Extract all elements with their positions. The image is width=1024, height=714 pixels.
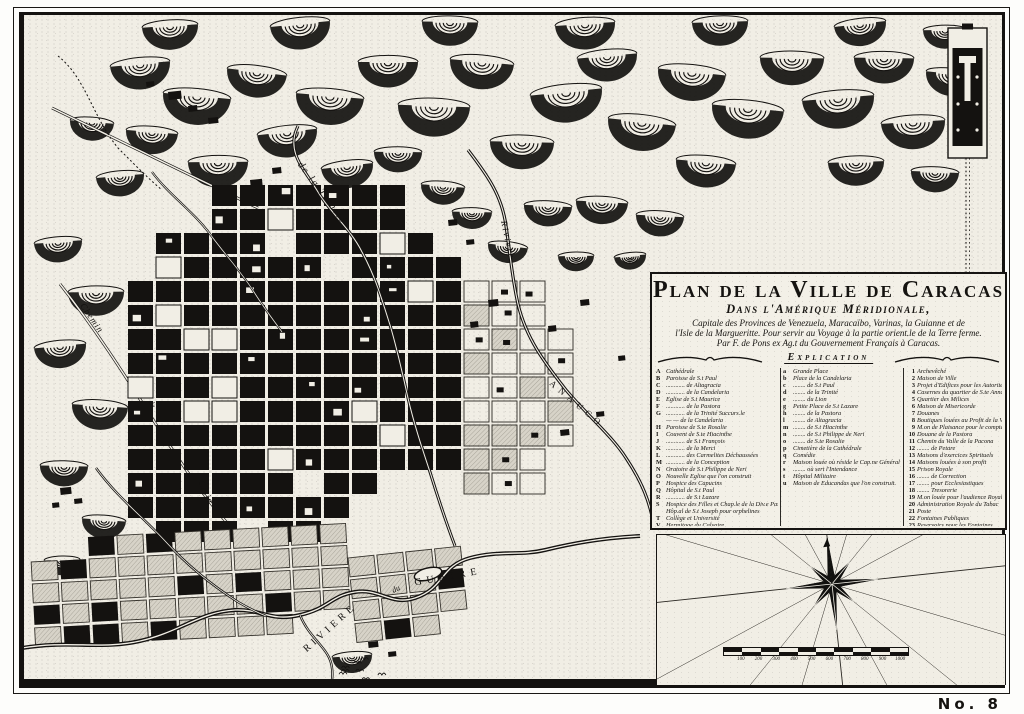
- legend-key: 14: [906, 459, 917, 466]
- legend-label: ........ du Lion: [793, 396, 901, 403]
- legend-label: Comédie: [793, 452, 901, 459]
- legend-key: [656, 508, 666, 515]
- legend-entry: tHôpital Militaire: [783, 473, 901, 480]
- legend-key: r: [783, 459, 793, 466]
- legend-key: 19: [906, 494, 917, 501]
- legend-label: — — de la Candelaria: [666, 417, 778, 424]
- legend-key: B: [656, 375, 666, 382]
- flourish-ornament: [893, 354, 1001, 364]
- legend-key: t: [783, 473, 793, 480]
- flourish-ornament: [656, 354, 764, 364]
- legend-label: Maisons louées à son profit: [917, 459, 1002, 466]
- legend-label: ............ de la Conception: [666, 459, 778, 466]
- legend-entry: 9M.on de Plaisance pour le compte du Roi: [906, 424, 1002, 431]
- legend-key: 11: [906, 438, 917, 445]
- legend-entry: bPlace de la Candelaria: [783, 375, 901, 382]
- legend-entry: 7Douanes: [906, 410, 1002, 417]
- legend-entry: 20Administration Royale du Tabac: [906, 501, 1002, 508]
- legend-key: R: [656, 494, 666, 501]
- legend-key: 22: [906, 515, 917, 522]
- legend-key: N: [656, 466, 666, 473]
- legend-key: 12: [906, 445, 917, 452]
- legend-label: Couvent de S.te Hiacinthe: [666, 431, 778, 438]
- legend-key: s: [783, 466, 793, 473]
- scale-tick-label: 1000: [891, 657, 909, 662]
- legend-label: ........ de Altagracia: [793, 417, 901, 424]
- legend-label: ............ de la Candelaria: [666, 389, 778, 396]
- legend-entry: TCollège et Université: [656, 515, 778, 522]
- legend-key: K: [656, 445, 666, 452]
- compass-rose: [657, 535, 1006, 685]
- legend-key: 7: [906, 410, 917, 417]
- engraved-map-plate: de la Trinité Riviere ANAUCO RIVIERE du …: [0, 0, 1024, 714]
- legend-label: ............ de Altagracia: [666, 382, 778, 389]
- legend-key: l: [783, 417, 793, 424]
- legend-entry: ONouvelle Eglise que l'on construit: [656, 473, 778, 480]
- scale-tick-label: 500: [803, 657, 821, 662]
- legend-label: Poste: [917, 508, 1002, 515]
- legend-key: d: [783, 389, 793, 396]
- legend-key: 10: [906, 431, 917, 438]
- legend-label: Reservoirs pour les Fontaines: [917, 522, 1002, 526]
- legend-label: ........ de Petare: [917, 445, 1002, 452]
- legend-entry: gPetite Place de S.t Lazare: [783, 403, 901, 410]
- legend-entry: 3Projet d'Edifices pour les Autorités: [906, 382, 1002, 389]
- legend-label: M.on louée pour l'audience Royale: [917, 494, 1002, 501]
- legend-label: Oratoire de S.t Philippe de Neri: [666, 466, 778, 473]
- legend-entry: 4Casernes du quartier de S.te Anna: [906, 389, 1002, 396]
- legend-column-letters-lower: aGrande PlacebPlace de la Candelariac...…: [781, 368, 904, 526]
- legend-key: 3: [906, 382, 917, 389]
- legend-key: b: [783, 375, 793, 382]
- legend-entry: HParoisse de S.te Rosalie: [656, 424, 778, 431]
- legend-label: Place de la Candelaria: [793, 375, 901, 382]
- legend-key: D: [656, 389, 666, 396]
- legend-label: Hôp.al de S.t Joseph pour orphelines: [666, 508, 778, 515]
- legend-key: G: [656, 410, 666, 417]
- legend-key: 16: [906, 473, 917, 480]
- legend-entry: d........ de la Trinité: [783, 389, 901, 396]
- legend-key: T: [656, 515, 666, 522]
- legend-label: Cimetière de la Cathédrale: [793, 445, 901, 452]
- legend-entry: Hôp.al de S.t Joseph pour orphelines: [656, 508, 778, 515]
- legend-key: E: [656, 396, 666, 403]
- scale-bar-rule: [723, 647, 909, 656]
- legend-label: Maison de Educandas que l'on construit.: [793, 480, 901, 487]
- title-cartouche: Plan de la Ville de Caracas Dans l'Améri…: [650, 272, 1007, 530]
- legend-entry: qComédie: [783, 452, 901, 459]
- legend-key: 2: [906, 375, 917, 382]
- legend-label: ........ de S.t Paul: [793, 382, 901, 389]
- legend-key: o: [783, 438, 793, 445]
- plate-number: No. 8: [938, 695, 1002, 713]
- legend-label: Nouvelle Eglise que l'on construit: [666, 473, 778, 480]
- legend-label: Projet d'Edifices pour les Autorités: [917, 382, 1002, 389]
- scale-tick-label: 900: [874, 657, 892, 662]
- legend-label: Petite Place de S.t Lazare: [793, 403, 901, 410]
- legend-entry: 13Maisons d'exercices Spirituels: [906, 452, 1002, 459]
- legend-entry: ACathédrale: [656, 368, 778, 375]
- legend-label: ............ de la Pastora: [666, 403, 778, 410]
- legend-label: M.on de Plaisance pour le compte du Roi: [917, 424, 1002, 431]
- legend-entry: rMaison louée où réside le Cap.ne Généra…: [783, 459, 901, 466]
- scale-tick-label: 200: [750, 657, 768, 662]
- legend-label: Hospice des Filles et Chap.le de la Div.…: [666, 501, 778, 508]
- legend-key: C: [656, 382, 666, 389]
- legend-entry: L............ des Carmelites Déchaussées: [656, 452, 778, 459]
- legend-entry: M............ de la Conception: [656, 459, 778, 466]
- legend: ACathédraleBParoisse de S.t PaulC.......…: [652, 366, 1005, 528]
- legend-entry: 12........ de Petare: [906, 445, 1002, 452]
- scale-tick-label: 400: [785, 657, 803, 662]
- legend-label: ........ Tresorerie: [917, 487, 1002, 494]
- legend-key: I: [656, 431, 666, 438]
- legend-key: F: [656, 403, 666, 410]
- scale-tick-label: 100: [732, 657, 750, 662]
- legend-entry: 15Prison Royale: [906, 466, 1002, 473]
- legend-entry: 23Reservoirs pour les Fontaines: [906, 522, 1002, 526]
- legend-label: Hôpital de S.t Paul: [666, 487, 778, 494]
- legend-entry: 21Poste: [906, 508, 1002, 515]
- legend-label: ........ de S.te Rosalie: [793, 438, 901, 445]
- legend-key: P: [656, 480, 666, 487]
- legend-column-letters-upper: ACathédraleBParoisse de S.t PaulC.......…: [656, 368, 781, 526]
- legend-entry: 8Boutiques louées au Profit de la Ville: [906, 417, 1002, 424]
- legend-entry: PHospice des Capucins: [656, 480, 778, 487]
- description-line: l'Isle de la Margueritte. Pour servir au…: [652, 328, 1005, 338]
- legend-entry: s........ où sert l'Intendance: [783, 466, 901, 473]
- legend-label: ........ où sert l'Intendance: [793, 466, 901, 473]
- legend-entry: pCimetière de la Cathédrale: [783, 445, 901, 452]
- legend-entry: K............ de la Merci: [656, 445, 778, 452]
- scale-tick-label: 300: [767, 657, 785, 662]
- legend-label: Maison de Misericorde: [917, 403, 1002, 410]
- legend-key: h: [783, 410, 793, 417]
- legend-label: Archevêché: [917, 368, 1002, 375]
- legend-entry: 5Quartier des Milices: [906, 396, 1002, 403]
- legend-entry: D............ de la Candelaria: [656, 389, 778, 396]
- legend-entry: 1Archevêché: [906, 368, 1002, 375]
- legend-label: ........ de S.t Hiacinthe: [793, 424, 901, 431]
- legend-label: Maison de Ville: [917, 375, 1002, 382]
- legend-key: 20: [906, 501, 917, 508]
- legend-label: ........ de la Pastora: [793, 410, 901, 417]
- legend-key: V: [656, 522, 666, 526]
- legend-entry: QHôpital de S.t Paul: [656, 487, 778, 494]
- legend-label: Boutiques louées au Profit de la Ville: [917, 417, 1002, 424]
- legend-entry: R............ de S.t Lazare: [656, 494, 778, 501]
- legend-label: Prison Royale: [917, 466, 1002, 473]
- legend-entry: SHospice des Filles et Chap.le de la Div…: [656, 501, 778, 508]
- legend-key: 1: [906, 368, 917, 375]
- legend-entry: 16........ de Correction: [906, 473, 1002, 480]
- legend-entry: h........ de la Pastora: [783, 410, 901, 417]
- legend-label: Grande Place: [793, 368, 901, 375]
- legend-entry: C............ de Altagracia: [656, 382, 778, 389]
- legend-key: g: [783, 403, 793, 410]
- legend-entry: BParoisse de S.t Paul: [656, 375, 778, 382]
- legend-entry: VHermitage du Calvaire: [656, 522, 778, 526]
- legend-label: ........ de la Trinité: [793, 389, 901, 396]
- legend-label: Cathédrale: [666, 368, 778, 375]
- legend-entry: o........ de S.te Rosalie: [783, 438, 901, 445]
- legend-entry: e........ du Lion: [783, 396, 901, 403]
- legend-entry: — — de la Candelaria: [656, 417, 778, 424]
- legend-entry: 6Maison de Misericorde: [906, 403, 1002, 410]
- legend-key: Q: [656, 487, 666, 494]
- compass-panel: 1002003004005006007008009001000: [656, 534, 1006, 685]
- legend-entry: ICouvent de S.te Hiacinthe: [656, 431, 778, 438]
- legend-label: Hermitage du Calvaire: [666, 522, 778, 526]
- scale-bar-labels: 1002003004005006007008009001000: [732, 657, 909, 662]
- legend-label: Quartier des Milices: [917, 396, 1002, 403]
- legend-entry: 19M.on louée pour l'audience Royale: [906, 494, 1002, 501]
- scale-bar: 1002003004005006007008009001000: [723, 647, 909, 662]
- legend-entry: n........ de S.t Philippe de Neri: [783, 431, 901, 438]
- legend-label: Hôpital Militaire: [793, 473, 901, 480]
- legend-entry: 2Maison de Ville: [906, 375, 1002, 382]
- legend-key: J: [656, 438, 666, 445]
- legend-label: ........ de Correction: [917, 473, 1002, 480]
- legend-column-numbers: 1Archevêché2Maison de Ville3Projet d'Edi…: [904, 368, 1002, 526]
- legend-entry: 11Chemin du Valle de la Pacona: [906, 438, 1002, 445]
- description-line: Par F. de Pons ex Ag.t du Gouvernement F…: [652, 338, 1005, 348]
- legend-key: 17: [906, 480, 917, 487]
- legend-label: Eglise de S.t Maurice: [666, 396, 778, 403]
- map-description: Capitale des Provinces de Venezuela, Mar…: [652, 318, 1005, 348]
- legend-label: Chemin du Valle de la Pacona: [917, 438, 1002, 445]
- legend-entry: 17........ pour Ecclesiastiques: [906, 480, 1002, 487]
- legend-key: M: [656, 459, 666, 466]
- legend-key: p: [783, 445, 793, 452]
- legend-key: 21: [906, 508, 917, 515]
- legend-entry: 10Douane de la Pastora: [906, 431, 1002, 438]
- legend-entry: uMaison de Educandas que l'on construit.: [783, 480, 901, 487]
- legend-label: Casernes du quartier de S.te Anna: [917, 389, 1002, 396]
- legend-entry: 18........ Tresorerie: [906, 487, 1002, 494]
- map-subtitle: Dans l'Amérique Méridionale,: [652, 303, 1005, 316]
- legend-key: 15: [906, 466, 917, 473]
- legend-key: 13: [906, 452, 917, 459]
- legend-label: ........ de S.t Philippe de Neri: [793, 431, 901, 438]
- legend-key: 6: [906, 403, 917, 410]
- legend-key: 5: [906, 396, 917, 403]
- legend-entry: NOratoire de S.t Philippe de Neri: [656, 466, 778, 473]
- legend-entry: l........ de Altagracia: [783, 417, 901, 424]
- scale-tick-label: 600: [821, 657, 839, 662]
- legend-key: 4: [906, 389, 917, 396]
- legend-key: [656, 417, 666, 424]
- legend-entry: 14Maisons louées à son profit: [906, 459, 1002, 466]
- legend-label: Collège et Université: [666, 515, 778, 522]
- legend-key: 9: [906, 424, 917, 431]
- legend-key: S: [656, 501, 666, 508]
- legend-key: m: [783, 424, 793, 431]
- legend-label: Fontaines Publiques: [917, 515, 1002, 522]
- legend-key: 8: [906, 417, 917, 424]
- legend-label: Paroisse de S.t Paul: [666, 375, 778, 382]
- legend-key: n: [783, 431, 793, 438]
- legend-entry: F............ de la Pastora: [656, 403, 778, 410]
- legend-label: ............ des Carmelites Déchaussées: [666, 452, 778, 459]
- legend-entry: G............ de la Trinité Succurs.le: [656, 410, 778, 417]
- legend-entry: EEglise de S.t Maurice: [656, 396, 778, 403]
- legend-label: ............ de S.t François: [666, 438, 778, 445]
- legend-label: ............ de la Merci: [666, 445, 778, 452]
- legend-entry: aGrande Place: [783, 368, 901, 375]
- legend-key: c: [783, 382, 793, 389]
- legend-key: 23: [906, 522, 917, 526]
- legend-entry: 22Fontaines Publiques: [906, 515, 1002, 522]
- legend-key: a: [783, 368, 793, 375]
- legend-label: ............ de S.t Lazare: [666, 494, 778, 501]
- legend-key: 18: [906, 487, 917, 494]
- legend-label: Hospice des Capucins: [666, 480, 778, 487]
- legend-label: ........ pour Ecclesiastiques: [917, 480, 1002, 487]
- legend-label: Douane de la Pastora: [917, 431, 1002, 438]
- map-title: Plan de la Ville de Caracas: [652, 278, 1005, 303]
- legend-label: Administration Royale du Tabac: [917, 501, 1002, 508]
- legend-label: Maison louée où réside le Cap.ne Général: [793, 459, 901, 466]
- legend-key: L: [656, 452, 666, 459]
- legend-entry: c........ de S.t Paul: [783, 382, 901, 389]
- legend-key: q: [783, 452, 793, 459]
- legend-header-row: Explication: [652, 351, 1005, 366]
- legend-key: u: [783, 480, 793, 487]
- legend-key: e: [783, 396, 793, 403]
- legend-label: Paroisse de S.te Rosalie: [666, 424, 778, 431]
- legend-entry: m........ de S.t Hiacinthe: [783, 424, 901, 431]
- legend-header: Explication: [784, 352, 874, 364]
- scale-tick-label: 700: [838, 657, 856, 662]
- legend-entry: J............ de S.t François: [656, 438, 778, 445]
- legend-label: Douanes: [917, 410, 1002, 417]
- description-line: Capitale des Provinces de Venezuela, Mar…: [652, 318, 1005, 328]
- scale-tick-label: 800: [856, 657, 874, 662]
- legend-key: O: [656, 473, 666, 480]
- legend-label: Maisons d'exercices Spirituels: [917, 452, 1002, 459]
- legend-label: ............ de la Trinité Succurs.le: [666, 410, 778, 417]
- legend-key: A: [656, 368, 666, 375]
- legend-key: H: [656, 424, 666, 431]
